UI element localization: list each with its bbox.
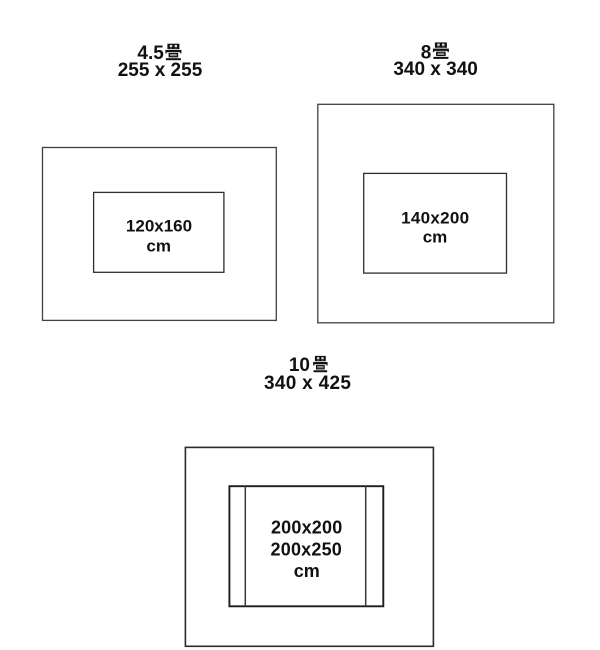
svg-text:340 x 425: 340 x 425 [264,373,351,394]
svg-text:cm: cm [294,561,320,581]
svg-text:200x200: 200x200 [271,518,342,538]
svg-text:200x250: 200x250 [271,540,342,560]
svg-text:cm: cm [146,236,171,255]
svg-text:cm: cm [423,228,448,247]
svg-text:120x160: 120x160 [126,217,192,236]
svg-text:140x200: 140x200 [401,208,469,227]
svg-text:340 x 340: 340 x 340 [393,59,478,80]
svg-text:255 x 255: 255 x 255 [118,60,203,81]
